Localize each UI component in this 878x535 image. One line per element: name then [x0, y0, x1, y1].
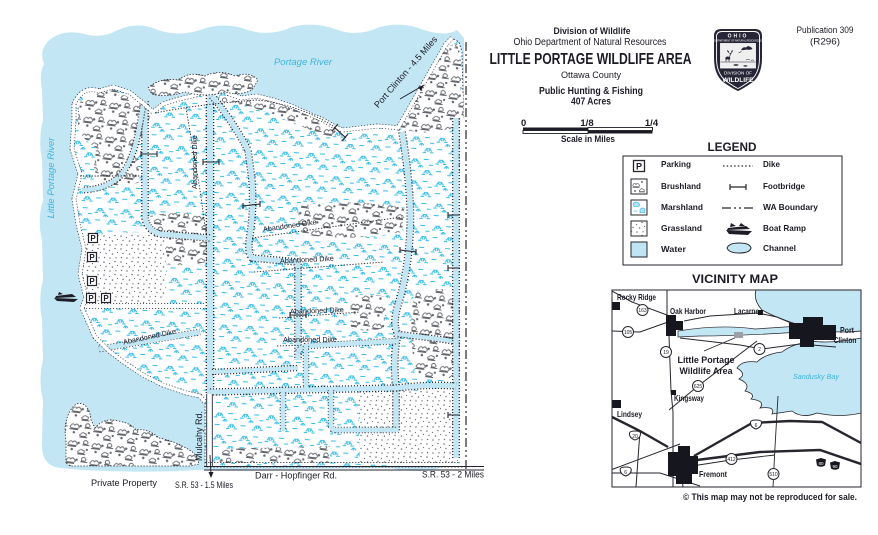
svg-text:Fremont: Fremont — [699, 469, 727, 479]
svg-text:Rocky Ridge: Rocky Ridge — [617, 292, 656, 302]
svg-text:Abandoned Dike: Abandoned Dike — [190, 135, 199, 189]
svg-text:Darr - Hopfinger Rd.: Darr - Hopfinger Rd. — [255, 471, 337, 481]
svg-text:Dike: Dike — [763, 159, 780, 169]
svg-text:LEGEND: LEGEND — [708, 142, 757, 154]
svg-text:Kingsway: Kingsway — [674, 393, 704, 403]
svg-text:80: 80 — [818, 461, 824, 466]
svg-text:6: 6 — [755, 423, 758, 429]
svg-text:Little Portage: Little Portage — [678, 355, 735, 366]
svg-text:Public Hunting & Fishing: Public Hunting & Fishing — [539, 86, 643, 97]
svg-text:Scale in Miles: Scale in Miles — [561, 134, 615, 144]
svg-text:DIVISION OF: DIVISION OF — [724, 71, 752, 76]
svg-text:LITTLE PORTAGE WILDLIFE AREA: LITTLE PORTAGE WILDLIFE AREA — [490, 51, 692, 68]
svg-text:WILDLIFE: WILDLIFE — [723, 77, 755, 84]
svg-text:Lindsey: Lindsey — [617, 409, 642, 419]
svg-text:163: 163 — [638, 308, 647, 314]
svg-text:Lacarne: Lacarne — [734, 306, 759, 316]
svg-text:P: P — [90, 234, 96, 243]
svg-text:Abandoned Dike: Abandoned Dike — [283, 335, 337, 344]
svg-text:625: 625 — [694, 384, 703, 390]
svg-text:Publication 309: Publication 309 — [797, 25, 854, 35]
svg-text:S.R. 53 - 2 Miles: S.R. 53 - 2 Miles — [422, 470, 484, 480]
svg-text:(R296): (R296) — [810, 37, 840, 47]
svg-text:90: 90 — [832, 464, 838, 469]
svg-text:105: 105 — [624, 330, 633, 336]
svg-text:Parking: Parking — [661, 159, 691, 169]
svg-text:Ohio Department of Natural Res: Ohio Department of Natural Resources — [514, 37, 667, 48]
svg-text:Boat Ramp: Boat Ramp — [763, 223, 806, 233]
svg-text:Grassland: Grassland — [661, 223, 702, 233]
svg-text:DEPARTMENT OF NATURAL RESOURCE: DEPARTMENT OF NATURAL RESOURCES — [714, 40, 762, 43]
svg-text:6: 6 — [624, 470, 627, 476]
svg-text:20: 20 — [632, 434, 638, 440]
svg-text:P: P — [636, 162, 642, 172]
svg-text:407 Acres: 407 Acres — [571, 97, 611, 108]
svg-text:Private Property: Private Property — [91, 478, 158, 488]
svg-text:© This map may not be reproduc: © This map may not be reproduced for sal… — [683, 492, 857, 503]
svg-text:Oak Harbor: Oak Harbor — [670, 306, 707, 316]
svg-text:S.R. 53 - 1.5 Miles: S.R. 53 - 1.5 Miles — [175, 480, 233, 490]
svg-text:412: 412 — [727, 457, 736, 463]
svg-text:Wildlife Area: Wildlife Area — [680, 366, 734, 377]
svg-text:VICINITY MAP: VICINITY MAP — [692, 274, 778, 286]
svg-text:510: 510 — [769, 472, 778, 478]
svg-text:P: P — [88, 294, 94, 303]
svg-text:Brushland: Brushland — [661, 181, 701, 191]
svg-text:19: 19 — [663, 350, 669, 356]
svg-text:Port: Port — [840, 325, 854, 335]
svg-text:Channel: Channel — [763, 243, 796, 253]
svg-text:Portage River: Portage River — [274, 57, 333, 68]
svg-text:Division of Wildlife: Division of Wildlife — [554, 26, 631, 36]
svg-text:Clinton: Clinton — [834, 335, 857, 345]
svg-text:P: P — [89, 277, 95, 286]
svg-text:Ottawa County: Ottawa County — [561, 70, 622, 80]
svg-text:Abandoned Dike: Abandoned Dike — [290, 305, 344, 316]
svg-text:P: P — [89, 253, 95, 262]
svg-text:WA Boundary: WA Boundary — [763, 202, 818, 212]
svg-text:Marshland: Marshland — [661, 202, 703, 212]
svg-text:Water: Water — [661, 244, 687, 254]
svg-text:Sandusky Bay: Sandusky Bay — [793, 372, 840, 381]
svg-text:Little Portage River: Little Portage River — [46, 137, 57, 219]
svg-text:Footbridge: Footbridge — [763, 181, 805, 191]
svg-text:2: 2 — [758, 347, 761, 353]
svg-text:P: P — [103, 294, 109, 303]
svg-text:Mulcahy Rd.: Mulcahy Rd. — [194, 411, 204, 461]
svg-text:0: 0 — [521, 118, 526, 129]
